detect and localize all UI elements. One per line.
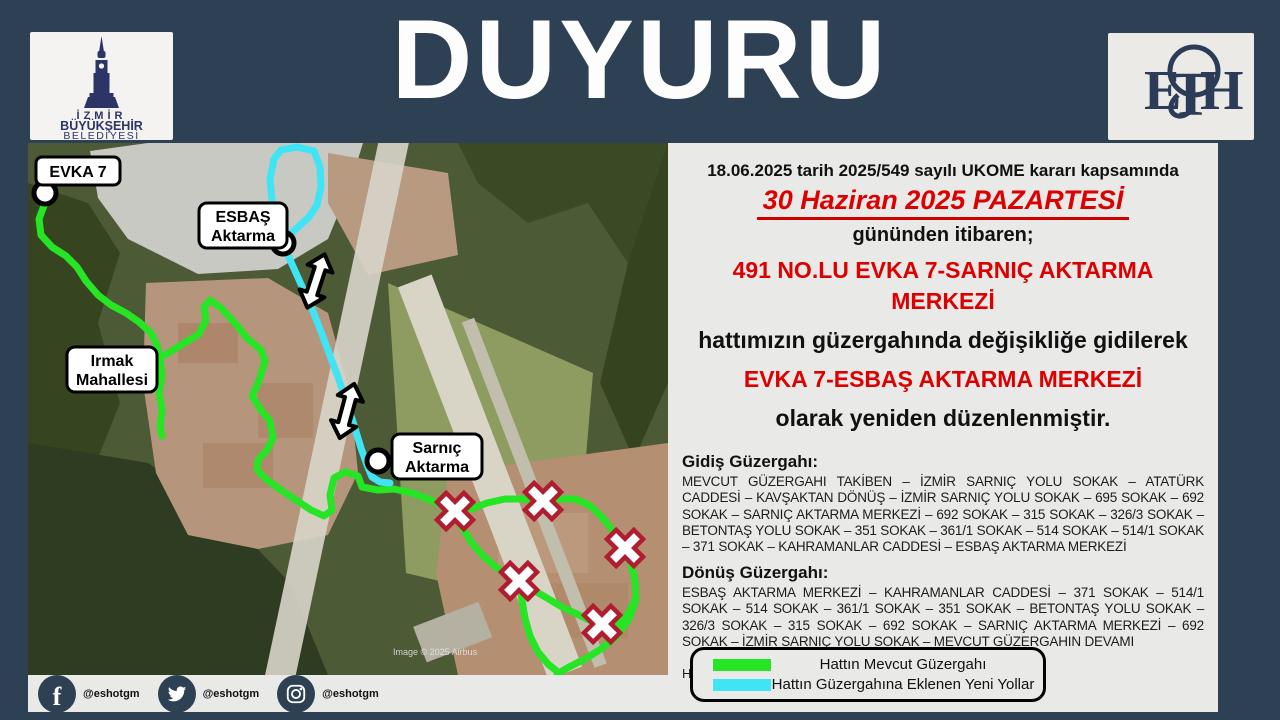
svg-text:ESBAŞ: ESBAŞ [215, 209, 270, 226]
twitter-handle: @eshotgm [203, 688, 260, 700]
map-copyright: Image © 2025 Airbus [393, 647, 478, 657]
as-of-line: gününden itibaren; [680, 224, 1206, 247]
map-label-evka7: EVKA 7 [36, 157, 120, 185]
clock-tower-icon: İZMİR BÜYÜKŞEHİR BELEDİYESİ [30, 32, 173, 140]
instagram-handle: @eshotgm [322, 688, 379, 700]
facebook-icon[interactable]: f [38, 675, 76, 713]
izmir-municipality-logo: İZMİR BÜYÜKŞEHİR BELEDİYESİ [30, 32, 173, 140]
legend-swatch-current-route [713, 659, 771, 671]
svg-text:H: H [1200, 60, 1244, 122]
facebook-handle: @eshotgm [83, 688, 140, 700]
map-label-esbas-aktarma: ESBAŞ Aktarma [199, 203, 287, 248]
svg-text:Sarnıç: Sarnıç [413, 440, 462, 457]
return-route-heading: Dönüş Güzergahı: [682, 563, 1204, 583]
announcement-panel: 18.06.2025 tarih 2025/549 sayılı UKOME k… [668, 143, 1218, 712]
header-band: DUYURU İZMİR BÜYÜKŞEHİR BELEDİYESİ [0, 0, 1280, 143]
new-route-name: EVKA 7-ESBAŞ AKTARMA MERKEZİ [680, 364, 1206, 395]
outbound-route-heading: Gidiş Güzergahı: [682, 452, 1204, 472]
social-item-twitter: @eshotgm [158, 675, 260, 713]
legend-label-new-roads: Hattın Güzergahına Eklenen Yeni Yollar [771, 676, 1035, 693]
svg-text:Irmak: Irmak [91, 353, 134, 370]
old-route-name: 491 NO.LU EVKA 7-SARNIÇ AKTARMA MERKEZİ [680, 255, 1206, 317]
outbound-route-body: MEVCUT GÜZERGAHI TAKİBEN – İZMİR SARNIÇ … [682, 474, 1204, 555]
twitter-icon[interactable] [158, 675, 196, 713]
rearranged-line: olarak yeniden düzenlenmiştir. [680, 403, 1206, 434]
legend-swatch-new-roads [713, 679, 771, 691]
route-map: EVKA 7 ESBAŞ Aktarma Irmak Mahallesi Sar… [28, 143, 668, 675]
social-item-instagram: @eshotgm [277, 675, 379, 713]
map-legend: Hattın Mevcut Güzergahı Hattın Güzergahı… [690, 647, 1046, 702]
svg-text:Aktarma: Aktarma [405, 459, 469, 476]
svg-text:Aktarma: Aktarma [211, 228, 275, 245]
return-route-body: ESBAŞ AKTARMA MERKEZİ – KAHRAMANLAR CADD… [682, 585, 1204, 650]
map-label-sarnic-aktarma: Sarnıç Aktarma [392, 434, 482, 479]
instagram-icon[interactable] [277, 675, 315, 713]
eshot-monogram-icon: E T H [1108, 33, 1254, 140]
social-item-facebook: f @eshotgm [38, 675, 140, 713]
page-title: DUYURU [0, 0, 1280, 131]
change-description-line: hattımızın güzergahında değişikliğe gidi… [680, 325, 1206, 356]
footer-strip: f @eshotgm @eshotgm @ [28, 675, 668, 712]
svg-text:EVKA 7: EVKA 7 [49, 164, 106, 181]
effective-date: 30 Haziran 2025 PAZARTESİ [757, 185, 1130, 220]
legend-row-new: Hattın Güzergahına Eklenen Yeni Yollar [701, 676, 1035, 693]
legend-row-current: Hattın Mevcut Güzergahı [701, 656, 1035, 673]
svg-text:Mahallesi: Mahallesi [76, 372, 148, 389]
legend-label-current-route: Hattın Mevcut Güzergahı [771, 656, 1035, 673]
ukome-decision-line: 18.06.2025 tarih 2025/549 sayılı UKOME k… [680, 161, 1206, 181]
map-label-irmak-mahallesi: Irmak Mahallesi [67, 347, 157, 392]
eshot-logo: E T H [1108, 33, 1254, 140]
svg-text:BELEDİYESİ: BELEDİYESİ [63, 129, 139, 140]
